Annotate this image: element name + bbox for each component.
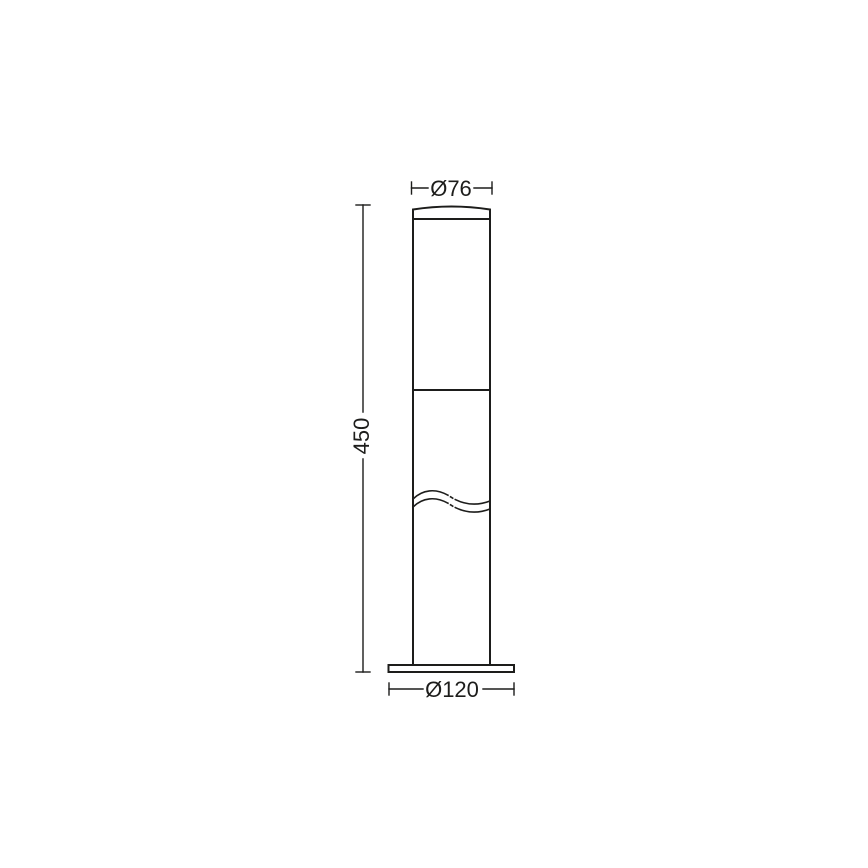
break-line-upper — [413, 491, 490, 504]
drawing-strokes-group: Ø76 450 Ø120 — [349, 176, 514, 702]
dimension-height: 450 — [349, 205, 374, 672]
base-plate — [389, 665, 515, 672]
dim-base-diameter-label: Ø120 — [425, 677, 479, 702]
dimension-base-diameter: Ø120 — [389, 677, 514, 702]
lamp-cap — [413, 207, 490, 220]
break-line-lower — [413, 499, 490, 512]
dim-height-label: 450 — [349, 418, 374, 455]
drawing-canvas: Ø76 450 Ø120 — [0, 0, 868, 868]
dimension-top-diameter: Ø76 — [412, 176, 493, 201]
dim-top-diameter-label: Ø76 — [430, 176, 472, 201]
bollard-technical-drawing: Ø76 450 Ø120 — [0, 0, 868, 868]
lamp-outline — [389, 207, 515, 673]
